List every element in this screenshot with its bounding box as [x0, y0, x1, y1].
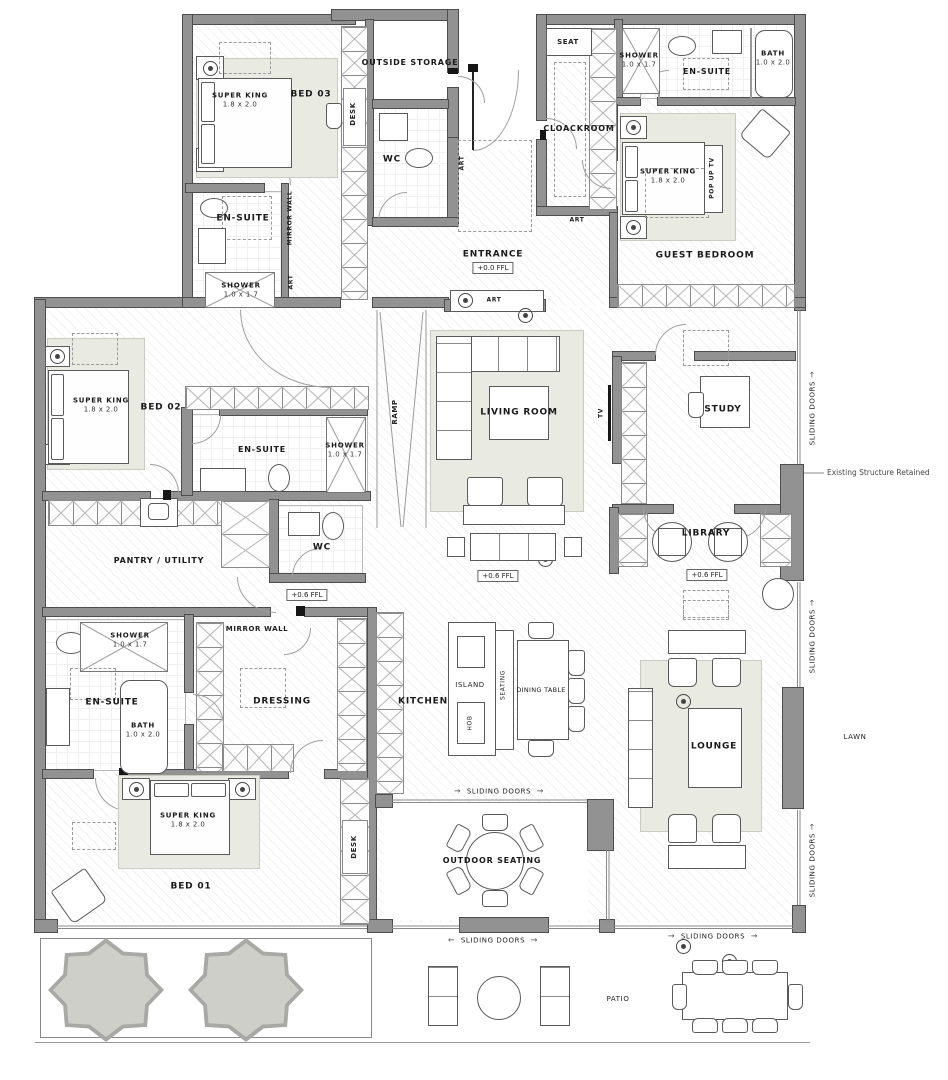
nightstand	[620, 216, 647, 239]
room-label-lawn: LAWN	[843, 733, 866, 741]
hob-label: HOB	[467, 715, 474, 730]
lamp-icon	[203, 61, 218, 76]
dashed-rug	[70, 668, 116, 700]
nightstand	[620, 116, 647, 139]
room-label-cloackroom: CLOACKROOM	[543, 124, 614, 134]
fixture-label-shower-top: SHOWER1.0 x 1.7	[619, 51, 659, 69]
bench-sofa	[470, 533, 556, 561]
tree-icon	[53, 943, 159, 1037]
sliding-doors-label-right-1: SLIDING DOORS →	[808, 371, 817, 445]
room-label-patio: PATIO	[607, 995, 630, 1003]
room-label-ensuite-bed02: EN-SUITE	[238, 445, 286, 455]
patio-chair	[752, 1018, 778, 1033]
armchair	[712, 658, 741, 687]
patio-dining-table	[682, 972, 788, 1020]
nightstand	[122, 778, 150, 800]
sliding-door-glazing	[797, 810, 802, 906]
patio-chair	[672, 984, 687, 1010]
pillow	[154, 783, 189, 797]
island-sink	[457, 636, 485, 668]
bed-label-bed02: SUPER KING1.8 x 2.0	[73, 396, 129, 414]
patio-sofa	[428, 966, 458, 1026]
wc-cistern	[379, 113, 408, 141]
sliding-doors-label-patio: → SLIDING DOORS →	[668, 932, 758, 941]
pop-up-tv-label: POP UP TV	[709, 157, 716, 198]
window	[57, 924, 368, 929]
patio-chair	[788, 984, 803, 1010]
wall	[43, 608, 270, 616]
fixture-label-bath-bed01: BATH1.0 x 2.0	[126, 721, 160, 739]
room-label-living-room: LIVING ROOM	[480, 407, 557, 418]
pantry-basin	[148, 503, 169, 520]
nightstand	[45, 346, 70, 367]
art-label-cloackroom: ART	[570, 217, 585, 224]
sliding-doors-label-right-3: SLIDING DOORS →	[808, 823, 817, 897]
wall	[182, 408, 192, 495]
bed-label-bed01: SUPER KING1.8 x 2.0	[160, 811, 216, 829]
arrow-right-icon: →	[808, 823, 817, 830]
wall	[610, 508, 618, 573]
ffl-library: +0.6 FFL	[686, 569, 727, 581]
room-label-bed02: BED 02	[141, 402, 182, 413]
wall-pier	[793, 906, 805, 932]
wc-cabinet	[288, 512, 320, 536]
room-label-dressing: DRESSING	[253, 696, 311, 707]
pantry-units-right	[221, 500, 270, 568]
wall	[610, 213, 617, 307]
art-label-bed03: ART	[288, 275, 295, 290]
dashed-rug	[683, 330, 729, 366]
fixture-label-shower-bed03: SHOWER1.0 x 1.7	[221, 281, 261, 299]
desk-chair	[688, 392, 704, 418]
armchair	[527, 477, 563, 507]
room-label-wc-mid: WC	[313, 542, 331, 553]
vanity	[200, 468, 246, 492]
wall-pier	[783, 688, 803, 808]
desk-chair	[326, 103, 342, 129]
room-label-entrance: ENTRANCE	[463, 249, 523, 260]
wall	[305, 608, 370, 616]
island-label: ISLAND	[455, 681, 485, 689]
door-jamb	[296, 606, 305, 616]
wardrobe-study	[621, 362, 647, 504]
shelves-library-right	[760, 513, 792, 567]
wall-pier	[35, 920, 57, 932]
ramp-label: RAMP	[391, 399, 399, 424]
patio-chair	[692, 960, 718, 975]
wall	[183, 15, 192, 307]
mirror-wall-label-dressing: MIRROR WALL	[226, 625, 288, 633]
wall	[43, 770, 93, 778]
art-label-walkway: ART	[459, 156, 466, 171]
wardrobe-dressing-bottom	[222, 744, 294, 772]
lounge-sofa	[628, 688, 653, 808]
arrow-right-icon: →	[454, 787, 461, 796]
dining-chair	[568, 650, 585, 676]
pillow	[191, 783, 226, 797]
wall	[613, 357, 621, 463]
wall	[185, 615, 193, 692]
arrow-right-icon: →	[808, 599, 817, 606]
wall	[537, 140, 546, 215]
wardrobe-guest	[617, 284, 795, 308]
partition	[750, 28, 752, 98]
nightstand	[228, 778, 256, 800]
room-label-ensuite-top: EN-SUITE	[683, 67, 731, 77]
armchair	[712, 814, 741, 843]
room-label-study: STUDY	[704, 404, 741, 415]
lamp-icon	[50, 349, 65, 364]
seating-label: SEATING	[500, 670, 507, 700]
wall	[170, 492, 370, 500]
room-label-bed01: BED 01	[171, 881, 212, 892]
door-jamb	[468, 64, 478, 72]
vanity	[46, 688, 70, 746]
sliding-door-glazing	[392, 798, 588, 803]
pillow	[51, 374, 64, 416]
vanity	[712, 30, 742, 54]
sliding-doors-label-terrace: ← SLIDING DOORS →	[448, 936, 538, 945]
desk-label-corridor: DESK	[349, 102, 357, 125]
desk-label-bed01: DESK	[350, 835, 358, 858]
bed-label-guest: SUPER KING1.8 x 2.0	[640, 167, 696, 185]
lamp-icon	[129, 782, 144, 797]
patio-chair	[752, 960, 778, 975]
room-label-wc-top: WC	[383, 154, 401, 165]
toilet-icon	[668, 36, 696, 56]
pillow	[201, 124, 215, 164]
wall-pier	[588, 800, 613, 850]
lamp-icon	[458, 293, 473, 308]
room-label-lounge: LOUNGE	[691, 741, 737, 752]
arrow-right-icon: →	[537, 787, 544, 796]
arrow-right-icon: →	[668, 932, 675, 941]
lamp-icon	[518, 308, 533, 323]
wall	[658, 98, 795, 105]
wall	[185, 725, 193, 773]
wall	[43, 492, 150, 500]
patio-chair	[722, 1018, 748, 1033]
wall	[448, 138, 458, 226]
wardrobe-dressing-right	[337, 618, 367, 772]
fixture-label-bath-top: BATH1.0 x 2.0	[756, 49, 790, 67]
wall	[186, 184, 264, 192]
shelves-library-left	[618, 513, 648, 567]
wall	[332, 10, 458, 20]
patio-table	[477, 976, 521, 1020]
ffl-hall: +0.6 FFL	[286, 589, 327, 601]
dining-chair	[568, 678, 585, 704]
arrow-left-icon: ←	[448, 936, 455, 945]
entrance-mat	[458, 140, 532, 232]
wardrobe-bed02	[185, 386, 369, 410]
room-label-ensuite-bed03: EN-SUITE	[216, 213, 269, 224]
bed-label-bed03: SUPER KING1.8 x 2.0	[212, 91, 268, 109]
outdoor-chair	[482, 814, 508, 831]
room-label-outdoor-seating: OUTDOOR SEATING	[443, 856, 541, 866]
sliding-door-glazing	[614, 924, 793, 929]
dining-chair	[528, 740, 554, 757]
door-jamb	[163, 490, 171, 500]
dashed-rug	[72, 822, 116, 850]
lamp-icon	[676, 694, 691, 709]
room-label-ensuite-bed01: EN-SUITE	[85, 697, 138, 708]
wall	[270, 500, 278, 582]
sliding-doors-label-kitchen: → SLIDING DOORS →	[454, 787, 544, 796]
tree-icon	[193, 943, 299, 1037]
sofa	[436, 336, 472, 460]
lamp-icon	[235, 782, 250, 797]
arrow-right-icon: →	[531, 936, 538, 945]
lamp-icon	[626, 120, 641, 135]
sliding-door-glazing	[797, 310, 802, 467]
console	[668, 630, 746, 654]
room-label-pantry: PANTRY / UTILITY	[114, 556, 205, 566]
potted-plant	[762, 578, 794, 610]
vanity	[198, 228, 226, 264]
wall-pier	[376, 795, 392, 807]
mirror-wall-label-bed03: MIRROR WALL	[287, 191, 294, 246]
fixture-label-shower-bed02: SHOWER1.0 x 1.7	[325, 441, 365, 459]
wall	[537, 15, 546, 120]
arrow-right-icon: →	[751, 932, 758, 941]
wall	[373, 100, 448, 108]
fixture-label-seat: SEAT	[557, 38, 579, 46]
side-table	[447, 537, 465, 557]
sliding-door-glazing	[392, 924, 460, 929]
room-label-library: LIBRARY	[682, 528, 730, 539]
wall	[448, 88, 458, 138]
dashed-rug	[72, 333, 118, 365]
sliding-door-glazing	[548, 924, 600, 929]
floor-plan: BED 03 OUTSIDE STORAGE WC EN-SUITE SHOWE…	[0, 0, 948, 1080]
door-jamb	[448, 68, 458, 74]
patio-sofa	[540, 966, 570, 1026]
pillow	[625, 146, 638, 178]
toilet-icon	[322, 512, 344, 540]
console	[463, 505, 565, 525]
study-desk	[700, 376, 750, 428]
room-label-bed03: BED 03	[291, 89, 332, 100]
wall	[795, 15, 805, 310]
ffl-living: +0.6 FFL	[477, 570, 518, 582]
ffl-entrance: +0.0 FFL	[472, 262, 513, 274]
tv-panel	[608, 385, 611, 441]
room-label-outside-storage: OUTSIDE STORAGE	[362, 58, 459, 68]
sliding-doors-label-right-2: SLIDING DOORS →	[808, 599, 817, 673]
pillow	[51, 418, 64, 460]
side-table	[564, 537, 582, 557]
console	[668, 845, 746, 869]
patio-chair	[692, 1018, 718, 1033]
armchair	[668, 814, 697, 843]
dining-chair	[528, 622, 554, 639]
patio-chair	[722, 960, 748, 975]
wall	[615, 98, 640, 105]
dining-table-label: DINING TABLE	[514, 686, 568, 694]
armchair	[467, 477, 503, 507]
room-label-kitchen: KITCHEN	[398, 696, 448, 707]
pillow	[625, 180, 638, 212]
tv-label: TV	[598, 408, 605, 418]
wall	[373, 298, 448, 307]
outdoor-chair	[482, 890, 508, 907]
dashed-rug	[683, 600, 729, 618]
art-label-entrance: ART	[487, 297, 502, 304]
toilet-icon	[268, 464, 290, 492]
wall-pier	[368, 920, 392, 932]
wall-pier	[460, 918, 548, 932]
fixture-label-shower-bed01: SHOWER1.0 x 1.7	[110, 631, 150, 649]
wall	[35, 298, 183, 307]
window	[606, 850, 611, 922]
sliding-door-glazing	[797, 582, 802, 688]
lamp-icon	[626, 220, 641, 235]
dashed-rug	[219, 42, 271, 74]
armchair	[668, 658, 697, 687]
dining-chair	[568, 706, 585, 732]
toilet-icon	[405, 148, 433, 168]
pantry-units-top	[48, 500, 222, 526]
existing-structure-note: Existing Structure Retained	[827, 468, 930, 477]
wall	[537, 15, 805, 24]
room-label-guest-bedroom: GUEST BEDROOM	[656, 250, 755, 261]
arrow-right-icon: →	[808, 371, 817, 378]
lamp-icon	[676, 939, 691, 954]
